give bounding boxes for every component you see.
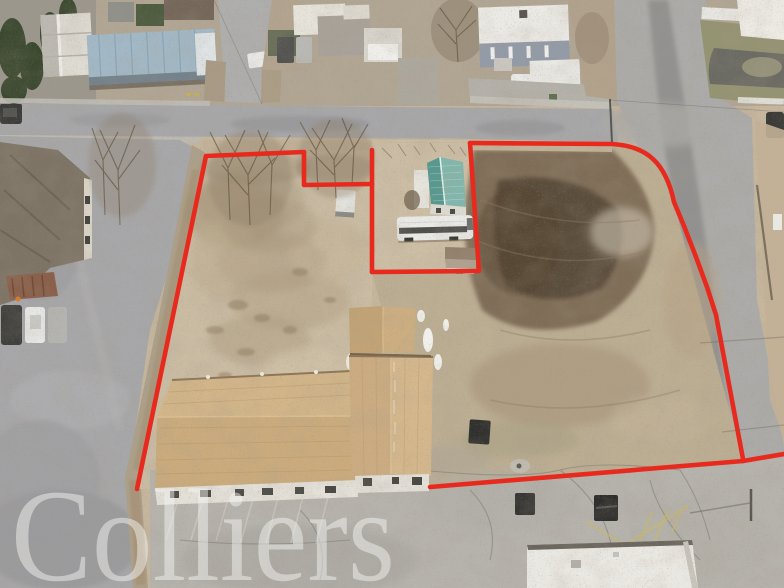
svg-text:Colliers: Colliers — [11, 462, 395, 588]
